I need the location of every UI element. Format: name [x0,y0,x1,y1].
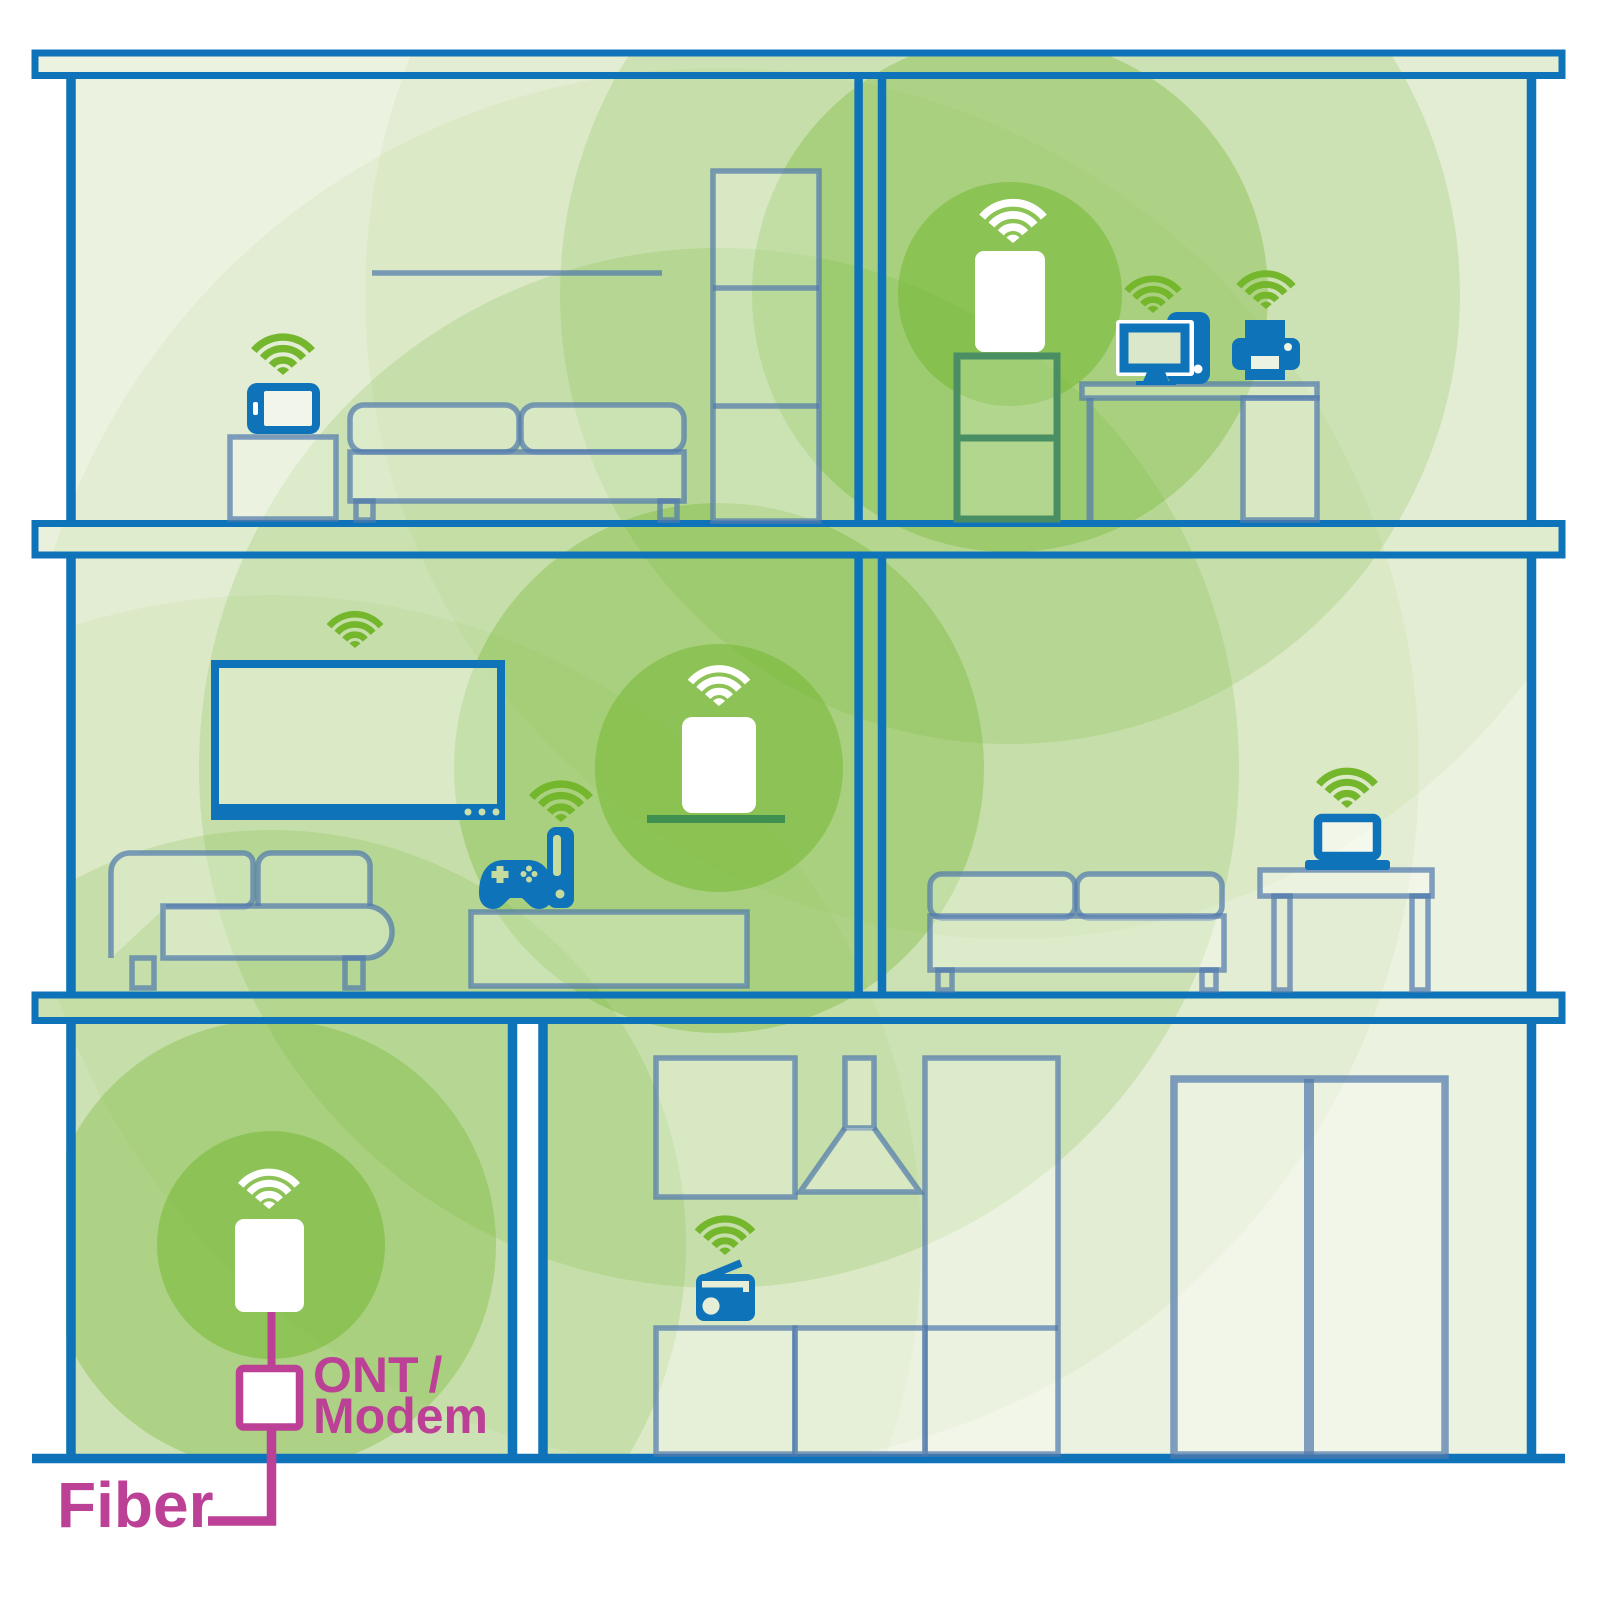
svg-text:Modem: Modem [313,1388,488,1444]
svg-text:Fiber: Fiber [57,1469,213,1541]
